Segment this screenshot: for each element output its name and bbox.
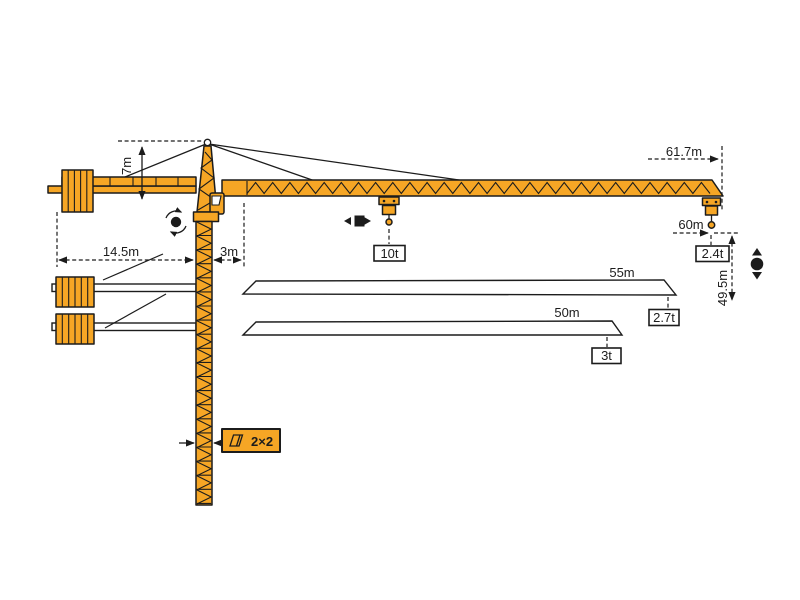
dim-label: 3m [220, 244, 238, 259]
load-label: 10t [380, 246, 398, 261]
pendant-jib-short [209, 144, 315, 181]
tower-mast [196, 222, 212, 506]
dim-label: 49.5m [715, 270, 730, 306]
trolley-travel-icon [344, 216, 371, 227]
trolley-wheel [715, 201, 718, 204]
callout-mast-section: 2×2 [179, 429, 280, 452]
right-arrow [364, 217, 371, 225]
hook [708, 222, 714, 228]
trolley-mid [379, 197, 399, 225]
load-label: 3t [601, 348, 612, 363]
trolley-wheel [393, 200, 396, 203]
dim-label: 61.7m [666, 144, 702, 159]
length-label: 50m [554, 305, 579, 320]
main-jib [222, 180, 723, 196]
operator-cab [210, 193, 224, 214]
counterweight-slabs [62, 170, 93, 212]
down-arrow [752, 272, 762, 280]
travel-square [355, 216, 365, 227]
diagram-canvas: 7m 61.7m 14.5m 3m 10t 60m 2.4t 49.5m [0, 0, 800, 600]
dim-label: 14.5m [103, 244, 139, 259]
cab-window [212, 196, 221, 205]
dim-label: 60m [678, 217, 703, 232]
jib-option-50m: 50m 3t [243, 305, 622, 364]
hook-block [706, 206, 718, 215]
trolley-carriage [379, 197, 399, 205]
trolley-carriage [703, 198, 721, 206]
slew-arc-bottom [171, 226, 186, 233]
dim-label: 7m [119, 157, 134, 175]
length-label: 55m [609, 265, 634, 280]
jib-option-55m: 55m 2.7t [243, 265, 679, 326]
jib-option-bar [243, 321, 622, 335]
jib-option-bar [243, 280, 676, 295]
hook-block [383, 206, 396, 215]
pendant-counterjib [125, 144, 206, 177]
dim-working-radius: 60m 2.4t [673, 217, 739, 262]
jib-chord [222, 180, 723, 196]
trolley-tip [703, 198, 721, 228]
hook [386, 219, 392, 225]
pendant-jib-long [209, 144, 473, 182]
trolley-wheel [383, 200, 386, 203]
counter-jib [48, 170, 196, 212]
hoist-updown-icon [751, 248, 764, 280]
trolley-wheel [706, 201, 709, 204]
slew-arc-top [166, 211, 181, 218]
hoist-dot [751, 258, 764, 271]
slewing-rotation-icon [166, 211, 186, 233]
load-label: 2.4t [702, 246, 724, 261]
crane-load-diagram: 7m 61.7m 14.5m 3m 10t 60m 2.4t 49.5m [0, 0, 800, 600]
left-arrow [344, 217, 351, 225]
turntable [194, 212, 219, 222]
load-label: 2.7t [653, 310, 675, 325]
section-label: 2×2 [251, 434, 273, 449]
callout-max-capacity: 10t [374, 229, 405, 261]
up-arrow [752, 248, 762, 256]
apex-pin [204, 139, 210, 145]
counterweight-option-55m [52, 254, 196, 307]
slew-dot [171, 217, 181, 227]
